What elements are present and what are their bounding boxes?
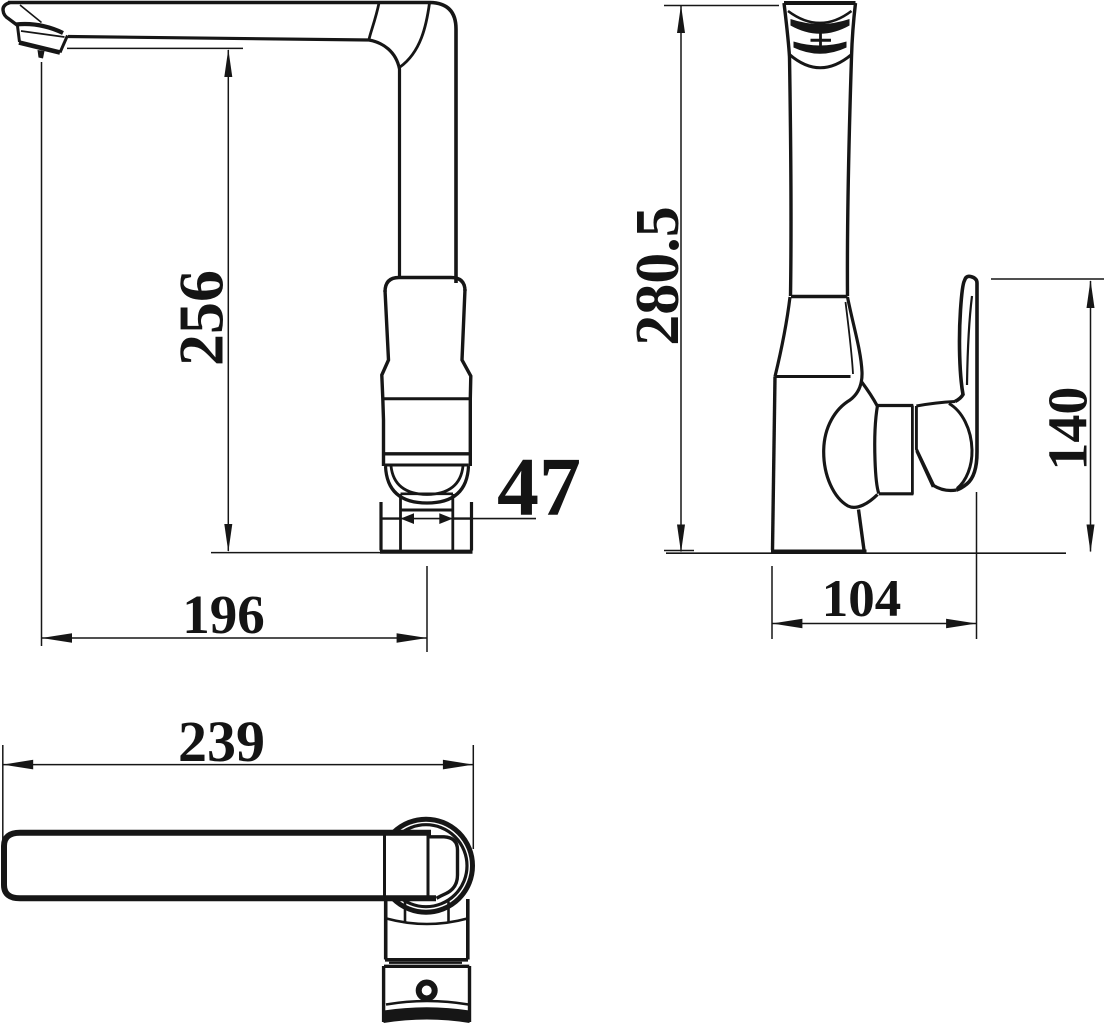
svg-text:256: 256 — [166, 270, 237, 366]
svg-text:239: 239 — [178, 709, 265, 774]
svg-text:196: 196 — [182, 584, 265, 645]
svg-text:280.5: 280.5 — [624, 206, 692, 346]
svg-text:104: 104 — [822, 570, 902, 628]
svg-text:47: 47 — [497, 441, 581, 534]
svg-text:140: 140 — [1038, 387, 1100, 471]
